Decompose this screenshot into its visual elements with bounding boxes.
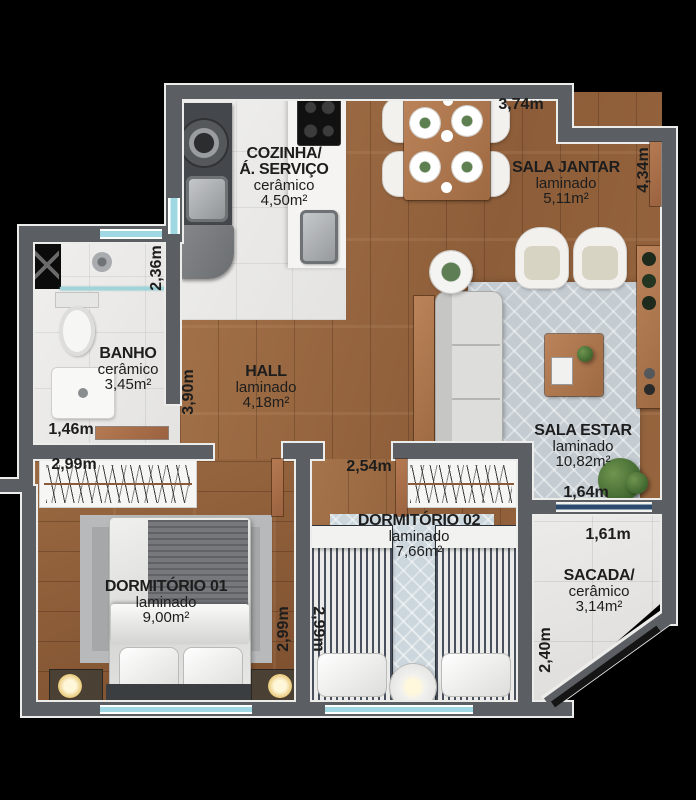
balcony-glass-door	[556, 502, 652, 512]
kitchen-sink	[300, 210, 338, 264]
plate-icon	[410, 108, 440, 138]
window-bathroom	[100, 229, 162, 239]
dimension-sacada-height: 2,40m	[537, 627, 555, 672]
dimension-dorm2-height: 2,99m	[309, 606, 327, 651]
wardrobe-rail	[408, 483, 514, 485]
label-cozinha: COZINHA/ Á. SERVIÇO cerâmico 4,50m²	[239, 146, 328, 208]
dimension-dorm1-height: 2,99m	[275, 606, 293, 651]
bedroom1-door	[272, 459, 283, 516]
sideboard-bowl-icon	[642, 274, 656, 288]
label-sala-jantar: SALA JANTAR laminado 5,11m²	[512, 160, 620, 206]
cooktop-icon	[298, 95, 340, 145]
room-material: laminado	[534, 439, 631, 454]
plate-icon	[410, 152, 440, 182]
dimension-jantar-top: 3,74m	[498, 96, 543, 114]
toilet-bowl	[59, 306, 95, 356]
pillow	[318, 654, 386, 696]
wall	[296, 459, 310, 716]
dimension-banho-width: 1,46m	[48, 421, 93, 439]
room-material: cerâmico	[564, 584, 635, 599]
dimension-banho-height: 2,36m	[148, 245, 166, 290]
table-decor	[441, 130, 453, 142]
room-name: Á. SERVIÇO	[239, 162, 328, 178]
coffee-table-plant	[577, 346, 593, 362]
sideboard-bowl-icon	[642, 296, 656, 310]
room-area: 9,00m²	[105, 610, 227, 625]
window-bedroom1	[100, 705, 252, 714]
room-name: SALA ESTAR	[534, 423, 631, 439]
sideboard-bowl-icon	[644, 368, 655, 379]
faucet-icon	[78, 388, 88, 398]
room-name: HALL	[236, 364, 297, 380]
sofa-cushion-line	[452, 344, 500, 346]
room-area: 10,82m²	[534, 454, 631, 469]
lamp-icon	[58, 674, 82, 698]
bathroom-door	[96, 427, 168, 439]
table-decor	[441, 182, 452, 193]
room-name: BANHO	[98, 346, 159, 362]
label-dormitorio1: DORMITÓRIO 01 laminado 9,00m²	[105, 579, 227, 625]
wall	[558, 128, 676, 142]
dimension-entry-right: 4,34m	[635, 147, 653, 192]
wall	[518, 443, 532, 716]
wall	[662, 128, 676, 624]
room-name: DORMITÓRIO 01	[105, 579, 227, 595]
room-name: COZINHA/	[239, 146, 328, 162]
room-area: 3,45m²	[98, 377, 159, 392]
room-area: 7,66m²	[358, 544, 480, 559]
sideboard-bowl-icon	[642, 252, 656, 266]
side-table-plant	[430, 251, 472, 293]
wall	[22, 486, 36, 716]
dimension-sacada-width: 1,61m	[585, 526, 630, 544]
label-sacada: SACADA/ cerâmico 3,14m²	[564, 568, 635, 614]
label-dormitorio2: DORMITÓRIO 02 laminado 7,66m²	[358, 513, 480, 559]
label-hall: HALL laminado 4,18m²	[236, 364, 297, 410]
dimension-dorm1-closet-width: 2,99m	[51, 456, 96, 474]
plate-icon	[452, 152, 482, 182]
room-material: laminado	[105, 595, 227, 610]
wall	[283, 443, 323, 459]
room-material: cerâmico	[239, 178, 328, 193]
room-material: cerâmico	[98, 362, 159, 377]
window-kitchen	[168, 198, 180, 234]
armchair-cushion	[582, 246, 618, 280]
wall	[166, 242, 180, 404]
bedroom2-door	[396, 459, 407, 516]
armchair-cushion	[524, 246, 560, 280]
wardrobe-rail	[44, 483, 192, 485]
room-material: laminado	[236, 380, 297, 395]
dimension-estar-bottom-width: 1,64m	[563, 484, 608, 502]
room-name: SACADA/	[564, 568, 635, 584]
dimension-hall-height: 3,90m	[180, 369, 198, 414]
room-material: laminado	[358, 529, 480, 544]
laundry-sink	[186, 176, 228, 222]
toilet-tank	[56, 293, 98, 307]
room-area: 4,50m²	[239, 193, 328, 208]
apartment-floor-plan: COZINHA/ Á. SERVIÇO cerâmico 4,50m² SALA…	[0, 0, 696, 800]
room-material: laminado	[512, 176, 620, 191]
shaft-hatch-icon	[35, 243, 59, 287]
sofa-console-table	[414, 296, 434, 448]
window-bedroom2	[325, 705, 473, 714]
label-banho: BANHO cerâmico 3,45m²	[98, 346, 159, 392]
dimension-dorm2-width: 2,54m	[346, 458, 391, 476]
room-name: DORMITÓRIO 02	[358, 513, 480, 529]
wall	[393, 443, 532, 459]
room-area: 3,14m²	[564, 599, 635, 614]
fridge	[178, 225, 234, 279]
washing-machine-icon	[181, 120, 227, 166]
room-name: SALA JANTAR	[512, 160, 620, 176]
pillow	[442, 654, 510, 696]
sofa	[436, 292, 502, 454]
shower-head-icon	[92, 252, 112, 272]
plate-icon	[452, 106, 482, 136]
sofa-cushion-line	[452, 398, 500, 400]
sideboard-bowl-icon	[644, 384, 655, 395]
label-sala-estar: SALA ESTAR laminado 10,82m²	[534, 423, 631, 469]
room-area: 5,11m²	[512, 191, 620, 206]
room-area: 4,18m²	[236, 395, 297, 410]
floor-plant-leaf	[626, 472, 648, 494]
lamp-icon	[268, 674, 292, 698]
coffee-table-tray	[552, 358, 572, 384]
